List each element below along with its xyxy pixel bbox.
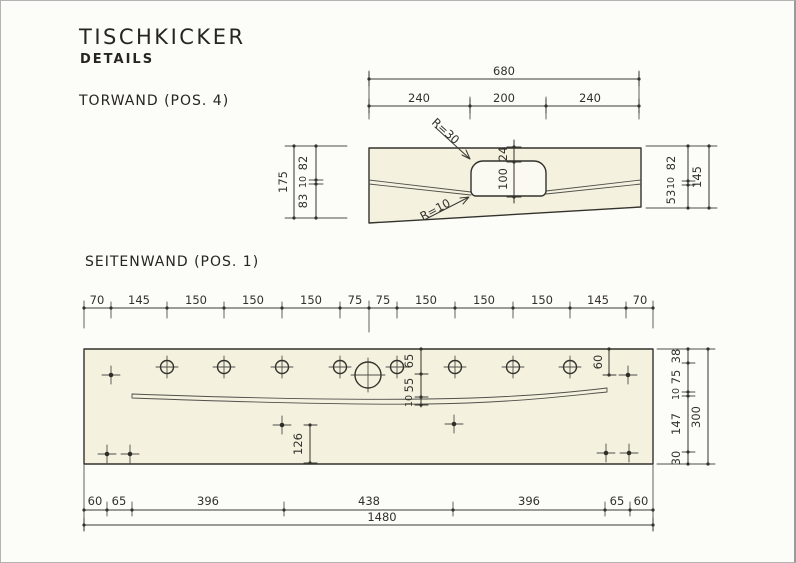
dim-label-right-total: 300: [689, 406, 703, 428]
dim-label-torwand-left-2: 83: [296, 194, 310, 209]
dim-label-top-0: 70: [90, 293, 105, 307]
dim-label-torwand-right-0: 82: [664, 156, 678, 171]
dim-label-opening-height: 100: [496, 168, 510, 190]
dim-label-bottom-3: 438: [358, 494, 380, 508]
dim-label-bottom-5: 65: [610, 494, 625, 508]
dim-label-bottom-0: 60: [88, 494, 103, 508]
drawing-sheet: TISCHKICKER DETAILS TORWAND (POS. 4) SEI…: [0, 0, 796, 563]
dim-label-top-4: 150: [300, 293, 322, 307]
dim-label-radius-top: R=30: [429, 115, 462, 147]
dim-label-top-2: 150: [185, 293, 207, 307]
dim-label-top-8: 150: [473, 293, 495, 307]
seitenwand-right-extensions: [657, 349, 715, 464]
dim-label-top-3: 150: [242, 293, 264, 307]
dim-label-hole-offset-bottom: 126: [291, 433, 305, 455]
dim-label-torwand-right-total: 145: [690, 166, 704, 188]
dim-label-right-1: 75: [669, 370, 683, 385]
dim-label-right-3: 147: [669, 413, 683, 435]
dim-label-torwand-right-1: 10: [666, 177, 677, 189]
dim-label-top-6: 75: [376, 293, 391, 307]
dim-label-mid-1: 55: [402, 378, 416, 393]
dim-label-right-2: 10: [671, 388, 682, 400]
dim-label-torwand-width-2: 240: [579, 91, 601, 105]
dim-label-top-10: 145: [587, 293, 609, 307]
dim-label-top-9: 150: [531, 293, 553, 307]
seitenwand-top-ticks: [84, 301, 653, 332]
dim-label-hole-offset-top: 60: [591, 355, 605, 370]
dim-label-bottom-2: 396: [197, 494, 219, 508]
dim-label-opening-offset: 24: [496, 147, 510, 162]
dim-label-mid-0: 65: [402, 354, 416, 369]
dim-label-top-1: 145: [128, 293, 150, 307]
dim-label-torwand-width-0: 240: [408, 91, 430, 105]
dim-label-torwand-total-width: 680: [493, 64, 515, 78]
dim-label-mid-2: 10: [404, 395, 415, 407]
seitenwand-drawing: 70 145 150 150 150 75 75 150 150 150 145…: [84, 293, 715, 531]
dim-label-top-7: 150: [415, 293, 437, 307]
dim-label-right-4: 30: [669, 451, 683, 466]
dim-label-top-5: 75: [348, 293, 363, 307]
torwand-drawing: 680 240 200 240 24 100 175 82 10 83: [276, 64, 717, 223]
technical-drawing-canvas: 680 240 200 240 24 100 175 82 10 83: [1, 1, 796, 563]
dim-label-bottom-4: 396: [518, 494, 540, 508]
dim-label-torwand-right-2: 53: [664, 190, 678, 205]
dim-label-torwand-left-1: 10: [298, 176, 309, 188]
dim-label-torwand-left-0: 82: [296, 156, 310, 171]
dim-label-torwand-left-total: 175: [276, 171, 290, 193]
dim-label-bottom-6: 60: [634, 494, 649, 508]
dim-label-bottom-total: 1480: [367, 510, 396, 524]
dim-label-torwand-width-1: 200: [493, 91, 515, 105]
dim-label-bottom-1: 65: [112, 494, 127, 508]
dim-label-top-11: 70: [633, 293, 648, 307]
seitenwand-plate-outline: [84, 349, 653, 464]
dim-label-right-0: 38: [669, 349, 683, 364]
